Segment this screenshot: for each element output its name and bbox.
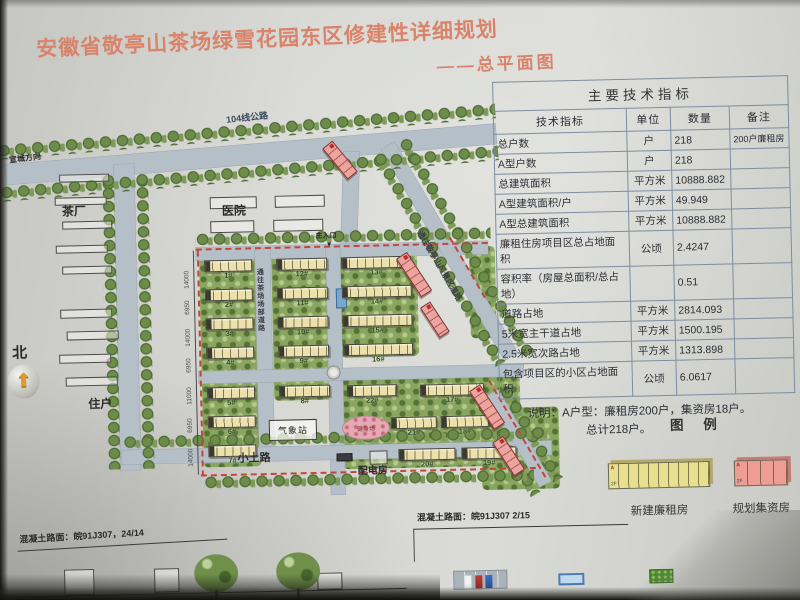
table-cell: 户	[626, 130, 671, 151]
outline-building	[59, 354, 111, 364]
dimension-label: 6950	[185, 358, 192, 373]
building-number: 5#	[227, 398, 236, 407]
outline-building	[210, 220, 254, 233]
building-number: 10#	[297, 327, 310, 336]
map-label: 通往茶场场部道路	[256, 268, 264, 332]
outline-building	[62, 266, 112, 275]
dimension-label: 6950	[184, 300, 191, 315]
outline-building	[317, 572, 342, 590]
building-number: 6#	[228, 427, 237, 436]
map-label: 住户	[88, 398, 112, 411]
outline-building	[62, 221, 112, 230]
building-number: 13#	[370, 267, 383, 276]
building-row: 20#	[398, 448, 455, 461]
legend-floors-tag: 2F	[611, 481, 617, 487]
outline-building	[59, 174, 109, 183]
building-row: 5#	[207, 386, 255, 399]
dimension-label: 6950	[187, 418, 194, 433]
table-cell: 0.51	[674, 264, 734, 300]
outline-building	[273, 219, 323, 232]
legend-title: 图 例	[595, 411, 800, 436]
building-number: 16#	[372, 354, 385, 363]
table-cell: 平方米	[628, 190, 673, 211]
dimension-label: 14000	[187, 449, 194, 467]
table-cell: 公顷	[632, 360, 677, 396]
building-number: 20#	[421, 459, 434, 468]
table-cell	[734, 298, 793, 319]
legend-item: A2F新建廉租房	[608, 461, 711, 519]
legend-building-icon: A2F	[733, 459, 788, 486]
leader-line	[413, 529, 415, 562]
table-cell: 1313.898	[675, 339, 734, 360]
legend-unit-tag: A	[736, 462, 740, 468]
building-number: 3#	[225, 329, 234, 338]
table-cell	[731, 188, 790, 209]
outline-building	[56, 245, 108, 254]
legend-item-label: 新建廉租房	[631, 502, 689, 519]
table-cell: 平方米	[628, 210, 673, 231]
building-row: 15#	[342, 314, 412, 328]
table-cell: 200户廉租房	[730, 128, 789, 149]
outline-building	[66, 376, 118, 386]
building-number: 1#	[224, 271, 233, 280]
parking-icon	[453, 570, 507, 590]
building-row: 10#	[277, 316, 328, 329]
building-number: 8#	[300, 396, 309, 405]
building-number: 11#	[296, 298, 308, 307]
building-row: 18#	[441, 415, 489, 428]
legend-item: A2F规划集资房	[731, 459, 790, 516]
building-number: 12#	[296, 269, 309, 278]
map-label: 配电房	[358, 466, 388, 477]
map-label: 混凝土路面：皖91J307，24/14	[19, 529, 144, 545]
ground-line	[413, 524, 628, 530]
building-row: 6#	[208, 415, 256, 428]
outline-building	[275, 195, 325, 208]
building-number: 7#	[228, 456, 237, 465]
table-cell	[733, 263, 793, 299]
map-label: 主入口	[315, 232, 336, 239]
legend: 图 例 A2F新建廉租房A2F规划集资房	[595, 411, 800, 520]
photo-background: 安徽省敬亭山茶场绿雪花园东区修建性详细规划 ——总平面图 气象站健身场1#2#3…	[0, 0, 800, 600]
building-number: 15#	[371, 325, 384, 334]
building-row: 16#	[343, 343, 413, 357]
table-cell	[735, 358, 795, 394]
building-number: 14#	[371, 296, 384, 305]
table-cell	[732, 228, 792, 264]
map-label: 北	[12, 345, 27, 360]
building-number: 19#	[483, 458, 496, 467]
building-number: 2#	[225, 300, 234, 309]
table-cell: 平方米	[631, 320, 676, 341]
table-cell: 49.949	[672, 189, 731, 210]
table-cell: 平方米	[631, 340, 676, 361]
table-cell: 10888.882	[673, 209, 732, 230]
building-row: 12#	[276, 258, 327, 271]
table-cell: 廉租住房项目区总占地面积	[496, 231, 630, 269]
table-cell: 1500.195	[675, 319, 734, 340]
building-row: 2#	[205, 288, 253, 301]
building-row: 8#	[279, 385, 330, 398]
building-number: 17#	[446, 395, 459, 404]
outline-building	[67, 330, 119, 340]
table-cell: 2.4247	[673, 229, 733, 265]
section-tree	[276, 552, 321, 591]
outline-building	[154, 568, 180, 593]
lawn-icon	[649, 569, 673, 584]
table-cell: 包含项目区的小区占地面积	[499, 361, 633, 399]
section-tree	[194, 554, 239, 593]
north-arrow-icon: ⬆	[7, 364, 40, 399]
dimension-label: 14000	[185, 329, 192, 347]
table-header-cell: 单位	[626, 107, 671, 131]
building-number: 22#	[366, 396, 379, 405]
building-row: 1#	[204, 259, 252, 272]
legend-unit-tag: A	[611, 465, 615, 471]
table-cell: 容积率（房屋总面积/总占地）	[497, 266, 631, 304]
building-number: 21#	[408, 428, 421, 437]
indicators-table-body: 总户数户218200户廉租房A型户数户218总建筑面积平方米10888.882A…	[494, 128, 795, 400]
table-row: 包含项目区的小区占地面积公顷6.0617	[499, 358, 795, 400]
table-cell: 户	[627, 150, 672, 171]
outline-building	[369, 450, 387, 464]
building-number: 4#	[226, 358, 235, 367]
table-header-cell: 数量	[670, 106, 730, 130]
legend-floors-tag: 2F	[737, 478, 743, 484]
table-cell	[732, 208, 791, 229]
weather-station-building: 气象站	[269, 419, 317, 441]
table-cell: 6.0617	[676, 359, 736, 395]
building-row: 14#	[342, 285, 412, 299]
table-cell	[730, 148, 789, 169]
legend-building-icon: A2F	[608, 461, 711, 489]
building-row: 21#	[391, 416, 437, 429]
planned-building-row	[420, 301, 450, 338]
building-row: 22#	[347, 384, 397, 397]
indicators-panel: 主要技术指标 技术指标单位数量备注 总户数户218200户廉租房A型户数户218…	[492, 75, 796, 440]
building-row: 3#	[205, 317, 253, 330]
table-cell: 平方米	[630, 300, 675, 321]
legend-items: A2F新建廉租房A2F规划集资房	[596, 459, 800, 520]
table-cell: 2814.093	[675, 299, 734, 320]
map-label: 医院	[222, 204, 246, 217]
table-cell: 10888.882	[672, 169, 731, 190]
table-header-cell: 技术指标	[493, 108, 626, 134]
building-row: 11#	[277, 287, 328, 300]
table-cell: 公顷	[629, 230, 674, 266]
building-number: 9#	[300, 356, 309, 365]
table-cell: 218	[671, 149, 730, 170]
outline-building	[60, 309, 112, 319]
indicators-table: 技术指标单位数量备注 总户数户218200户廉租房A型户数户218总建筑面积平方…	[493, 104, 795, 400]
building-row: 9#	[278, 345, 329, 358]
plan-document: 安徽省敬亭山茶场绿雪花园东区修建性详细规划 ——总平面图 气象站健身场1#2#3…	[0, 0, 800, 600]
building-row: 4#	[206, 346, 254, 359]
building-number: 18#	[459, 426, 472, 435]
table-header-cell: 备注	[729, 105, 789, 129]
table-cell	[734, 338, 793, 359]
dimension-label: 14000	[183, 271, 190, 289]
legend-item-label: 规划集资房	[732, 499, 790, 516]
map-label: 茶厂	[62, 205, 86, 218]
table-cell: 平方米	[627, 170, 672, 191]
utility-box	[336, 453, 352, 461]
map-label: ▼	[326, 242, 333, 249]
table-cell	[734, 318, 793, 339]
pool-icon	[558, 573, 584, 586]
outline-building	[64, 569, 95, 596]
dimension-label: 11000	[186, 387, 193, 405]
table-cell	[630, 265, 675, 301]
table-cell	[731, 168, 790, 189]
table-cell: 218	[671, 129, 730, 150]
map-label: 混凝土路面：皖91J307 2/15	[417, 511, 530, 523]
map-label: 小土路	[237, 453, 270, 465]
